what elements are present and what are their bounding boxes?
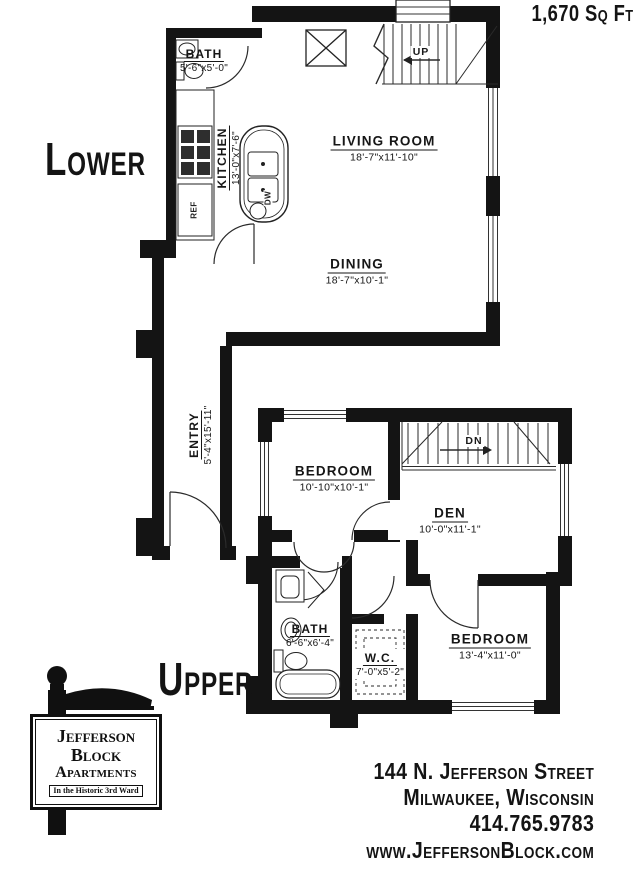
sign-tagline: In the Historic 3rd Ward bbox=[49, 785, 142, 797]
sink-basin bbox=[281, 576, 299, 598]
signboard: Jefferson Block Apartments In the Histor… bbox=[30, 714, 162, 810]
bifold-door bbox=[308, 572, 324, 608]
room-label-living-room: LIVING ROOM 18'-7"x11'-10" bbox=[331, 134, 438, 163]
sign-line-1: Jefferson bbox=[57, 727, 135, 746]
room-label-bedroom-2: BEDROOM 13'-4"x11'-0" bbox=[449, 632, 531, 661]
room-label-bath-lower: BATH 5'-6"x5'-0" bbox=[180, 46, 228, 74]
sign-line-2: Block bbox=[71, 746, 121, 765]
toilet-icon bbox=[285, 653, 307, 670]
room-label-entry: ENTRY 5'-4"x15'-11" bbox=[186, 405, 214, 464]
room-label-bath-upper: BATH 6'-6"x6'-4" bbox=[286, 621, 334, 649]
floor-label-lower: Lower bbox=[45, 132, 146, 186]
stair-label-down: DN bbox=[463, 435, 484, 447]
area-label: 1,670 Sq Ft bbox=[531, 0, 633, 27]
contact-phone: 414.765.9783 bbox=[366, 810, 594, 836]
sign-line-3: Apartments bbox=[55, 765, 136, 782]
contact-city: Milwaukee, Wisconsin bbox=[366, 784, 594, 810]
dw-label: DW bbox=[264, 190, 273, 206]
ref-label: REF bbox=[190, 200, 199, 220]
room-label-den: DEN 10'-0"x11'-1" bbox=[419, 506, 481, 535]
floor-label-upper: Upper bbox=[158, 652, 253, 706]
contact-address: 144 N. Jefferson Street bbox=[366, 758, 594, 784]
elevator-shaft bbox=[306, 30, 346, 66]
room-label-kitchen: KITCHEN 13'-0"x7'-6" bbox=[214, 125, 242, 190]
room-label-wc: W.C. 7'-0"x5'-2" bbox=[354, 649, 406, 679]
post-finial bbox=[47, 666, 67, 686]
floor-plan-sheet: 1,670 Sq Ft Lower Upper BATH 5'-6"x5'-0"… bbox=[0, 0, 640, 882]
contact-website: www.JeffersonBlock.com bbox=[366, 837, 594, 863]
room-label-dining: DINING 18'-7"x10'-1" bbox=[326, 257, 389, 286]
contact-block: 144 N. Jefferson Street Milwaukee, Wisco… bbox=[366, 758, 594, 863]
room-label-bedroom-1: BEDROOM 10'-10"x10'-1" bbox=[293, 464, 375, 493]
stairs-up bbox=[374, 24, 498, 84]
stair-label-up: UP bbox=[411, 46, 432, 58]
toilet-tank bbox=[274, 650, 283, 672]
kitchen-island bbox=[240, 126, 288, 222]
